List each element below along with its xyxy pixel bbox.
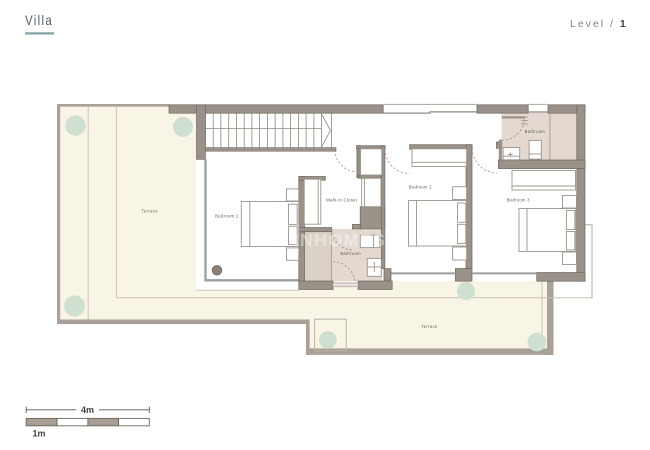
svg-text:Terrace: Terrace xyxy=(421,324,438,329)
svg-text:Bathroom: Bathroom xyxy=(525,129,546,134)
svg-text:Bedroom 1: Bedroom 1 xyxy=(215,213,239,218)
svg-text:INHOMES: INHOMES xyxy=(294,230,387,250)
svg-text:Bedroom 2: Bedroom 2 xyxy=(409,184,433,189)
svg-text:4m: 4m xyxy=(81,405,94,415)
svg-text:Level / 1: Level / 1 xyxy=(570,18,628,30)
svg-text:Terrace: Terrace xyxy=(141,208,158,213)
svg-text:Bedroom 3: Bedroom 3 xyxy=(507,198,531,203)
svg-text:Villa: Villa xyxy=(25,12,53,28)
svg-text:1m: 1m xyxy=(32,429,45,439)
svg-text:Walk-in Closet: Walk-in Closet xyxy=(326,198,358,203)
svg-text:Bathroom: Bathroom xyxy=(340,251,361,256)
